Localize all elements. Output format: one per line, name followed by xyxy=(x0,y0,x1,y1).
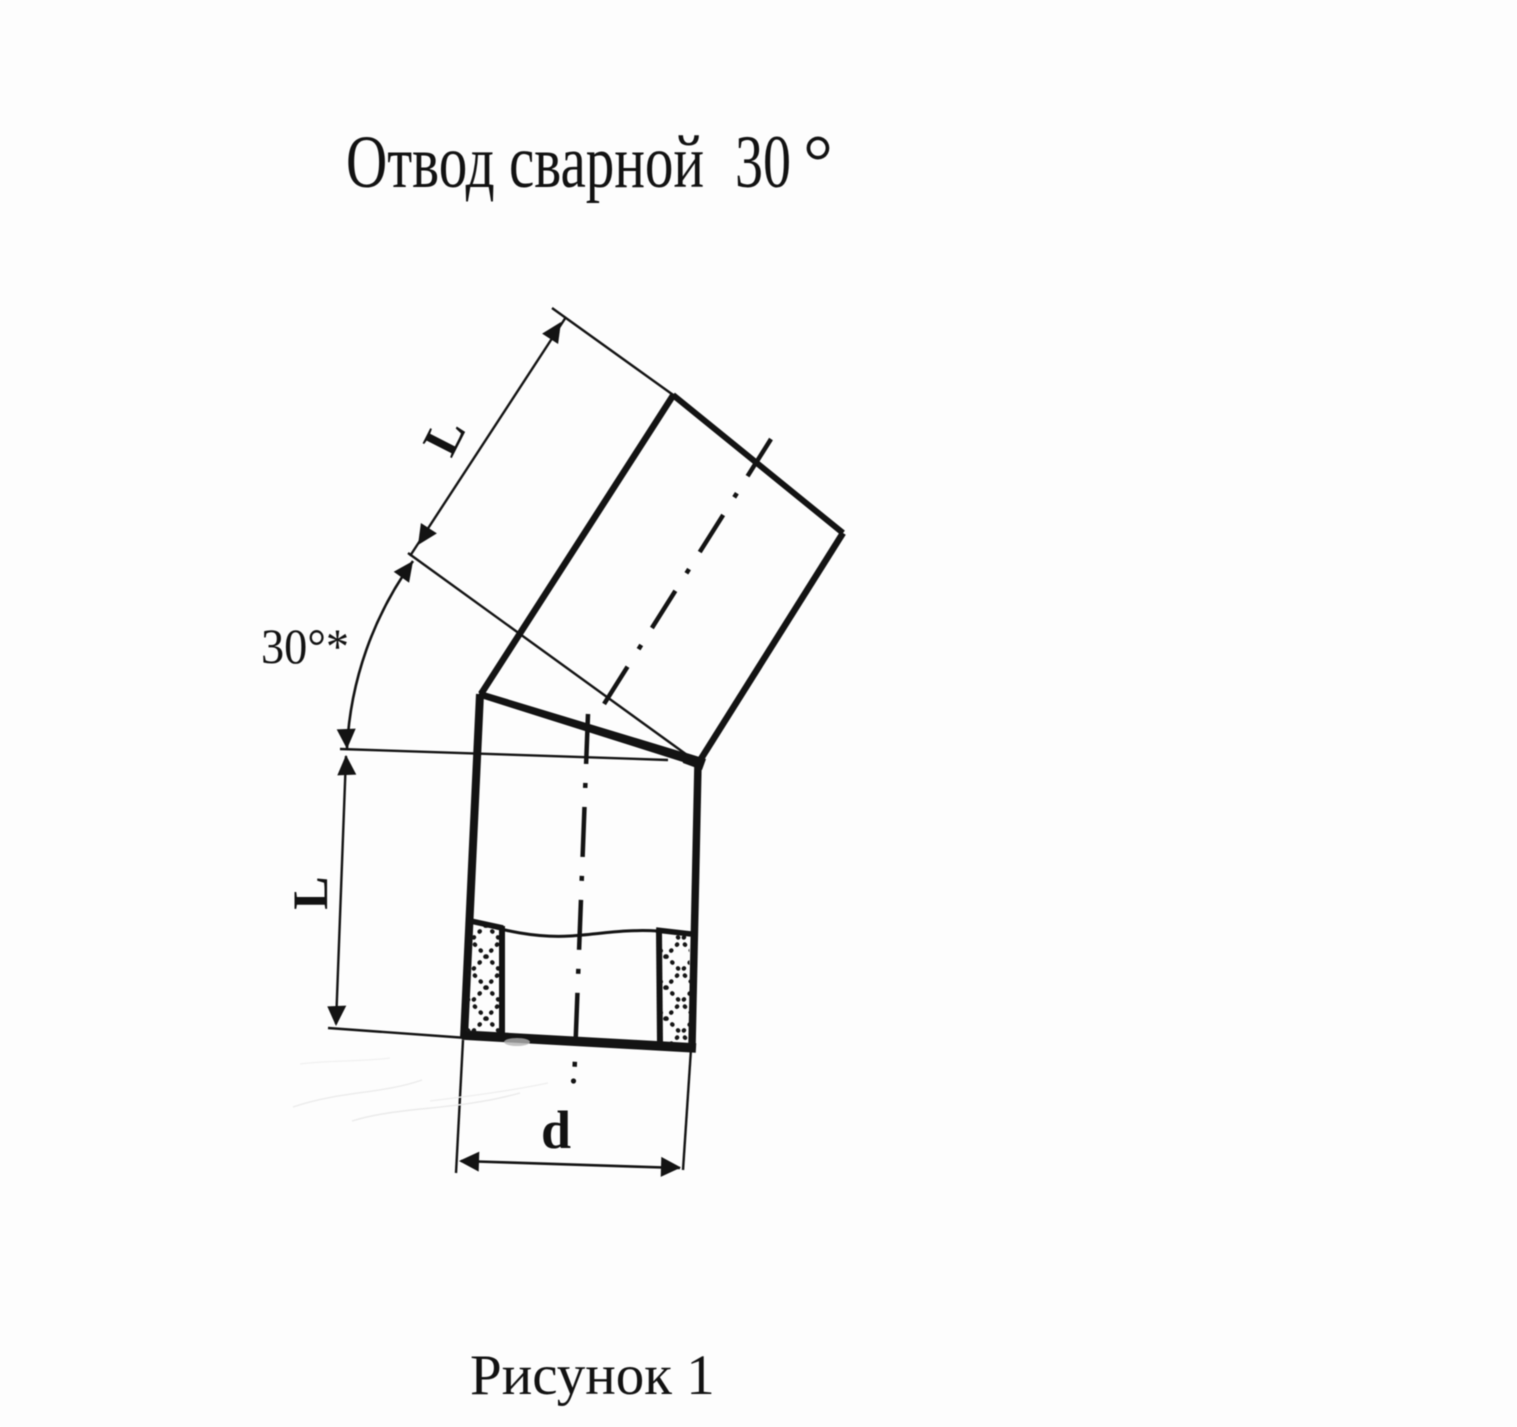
svg-text:30: 30 xyxy=(735,121,791,204)
svg-text:Рисунок 1: Рисунок 1 xyxy=(470,1344,715,1407)
svg-text:Отвод сварной: Отвод сварной xyxy=(346,121,704,204)
svg-text:°: ° xyxy=(803,121,833,204)
svg-text:L: L xyxy=(282,876,338,909)
svg-text:d: d xyxy=(541,1100,571,1160)
svg-text:30°*: 30°* xyxy=(261,618,349,674)
